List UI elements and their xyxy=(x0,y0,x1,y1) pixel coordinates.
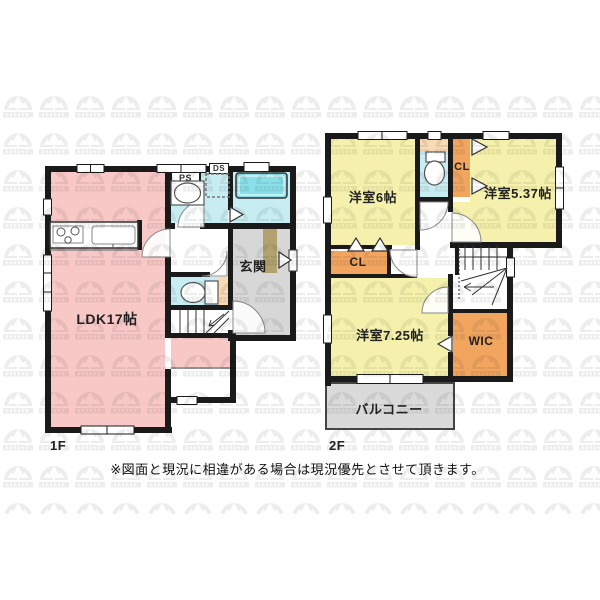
room-ldk xyxy=(51,172,165,427)
toilet-2f-shelf xyxy=(420,139,448,152)
cl-right-label: CL xyxy=(451,161,473,173)
room-west537-lower xyxy=(453,202,556,242)
wall xyxy=(166,397,236,403)
wall xyxy=(448,197,453,212)
stairs-1f xyxy=(180,310,229,333)
disclaimer-text: ※図面と現況に相違がある場合は現況優先とさせて頂きます。 xyxy=(0,459,595,478)
wall xyxy=(325,274,417,278)
wall xyxy=(325,376,513,382)
wall xyxy=(45,427,172,433)
wall xyxy=(450,242,562,248)
room-toilet-2f xyxy=(420,152,448,197)
wall xyxy=(228,272,233,310)
wall xyxy=(230,335,236,403)
room-ldk-extension xyxy=(171,338,230,369)
duct-space-box: DS xyxy=(209,163,229,174)
wall xyxy=(165,223,175,229)
pipe-space-box: PS xyxy=(170,168,201,187)
wall xyxy=(200,223,296,229)
genkan-label: 玄関 xyxy=(233,256,273,275)
west6-label: 洋室6帖 xyxy=(345,187,401,206)
wall xyxy=(507,242,513,382)
balcony-label: バルコニー xyxy=(351,399,427,418)
wall xyxy=(165,305,233,310)
west537-label: 洋室5.37帖 xyxy=(480,183,556,202)
wall xyxy=(448,274,453,336)
stairs-2f xyxy=(457,245,507,305)
west725-label: 洋室7.25帖 xyxy=(352,325,428,344)
ps-label: PS xyxy=(179,173,192,183)
wall xyxy=(165,369,171,433)
wall xyxy=(325,245,392,249)
kitchen-counter-end-wall xyxy=(137,220,142,250)
floor1-label: 1F xyxy=(50,438,66,453)
floor2-label: 2F xyxy=(329,438,345,453)
wall xyxy=(448,309,507,313)
wall xyxy=(455,245,459,275)
nook-divider-line xyxy=(171,367,230,369)
toilet-1f-shelf xyxy=(218,277,228,305)
wall xyxy=(448,352,453,382)
wall xyxy=(45,166,51,433)
room-genkan-floor xyxy=(233,229,290,335)
ds-label: DS xyxy=(213,164,225,173)
wall xyxy=(228,172,233,210)
room-bathroom xyxy=(233,172,290,223)
wall xyxy=(165,333,236,338)
wall xyxy=(290,166,296,341)
wall xyxy=(415,133,420,250)
wall xyxy=(325,133,331,386)
wall xyxy=(556,133,562,248)
ldk-label: LDK17帖 xyxy=(67,309,147,329)
room-toilet-1f xyxy=(171,277,218,305)
floorplan-canvas: PS DS LDK17帖 玄関 1F 洋室6帖 洋室5.37帖 CL CL 洋室… xyxy=(0,0,600,600)
wall xyxy=(165,257,171,272)
wic-label: WIC xyxy=(462,334,500,348)
wall xyxy=(230,335,296,341)
cl-left-label: CL xyxy=(344,255,372,269)
wall xyxy=(165,272,210,277)
wall xyxy=(325,133,562,139)
